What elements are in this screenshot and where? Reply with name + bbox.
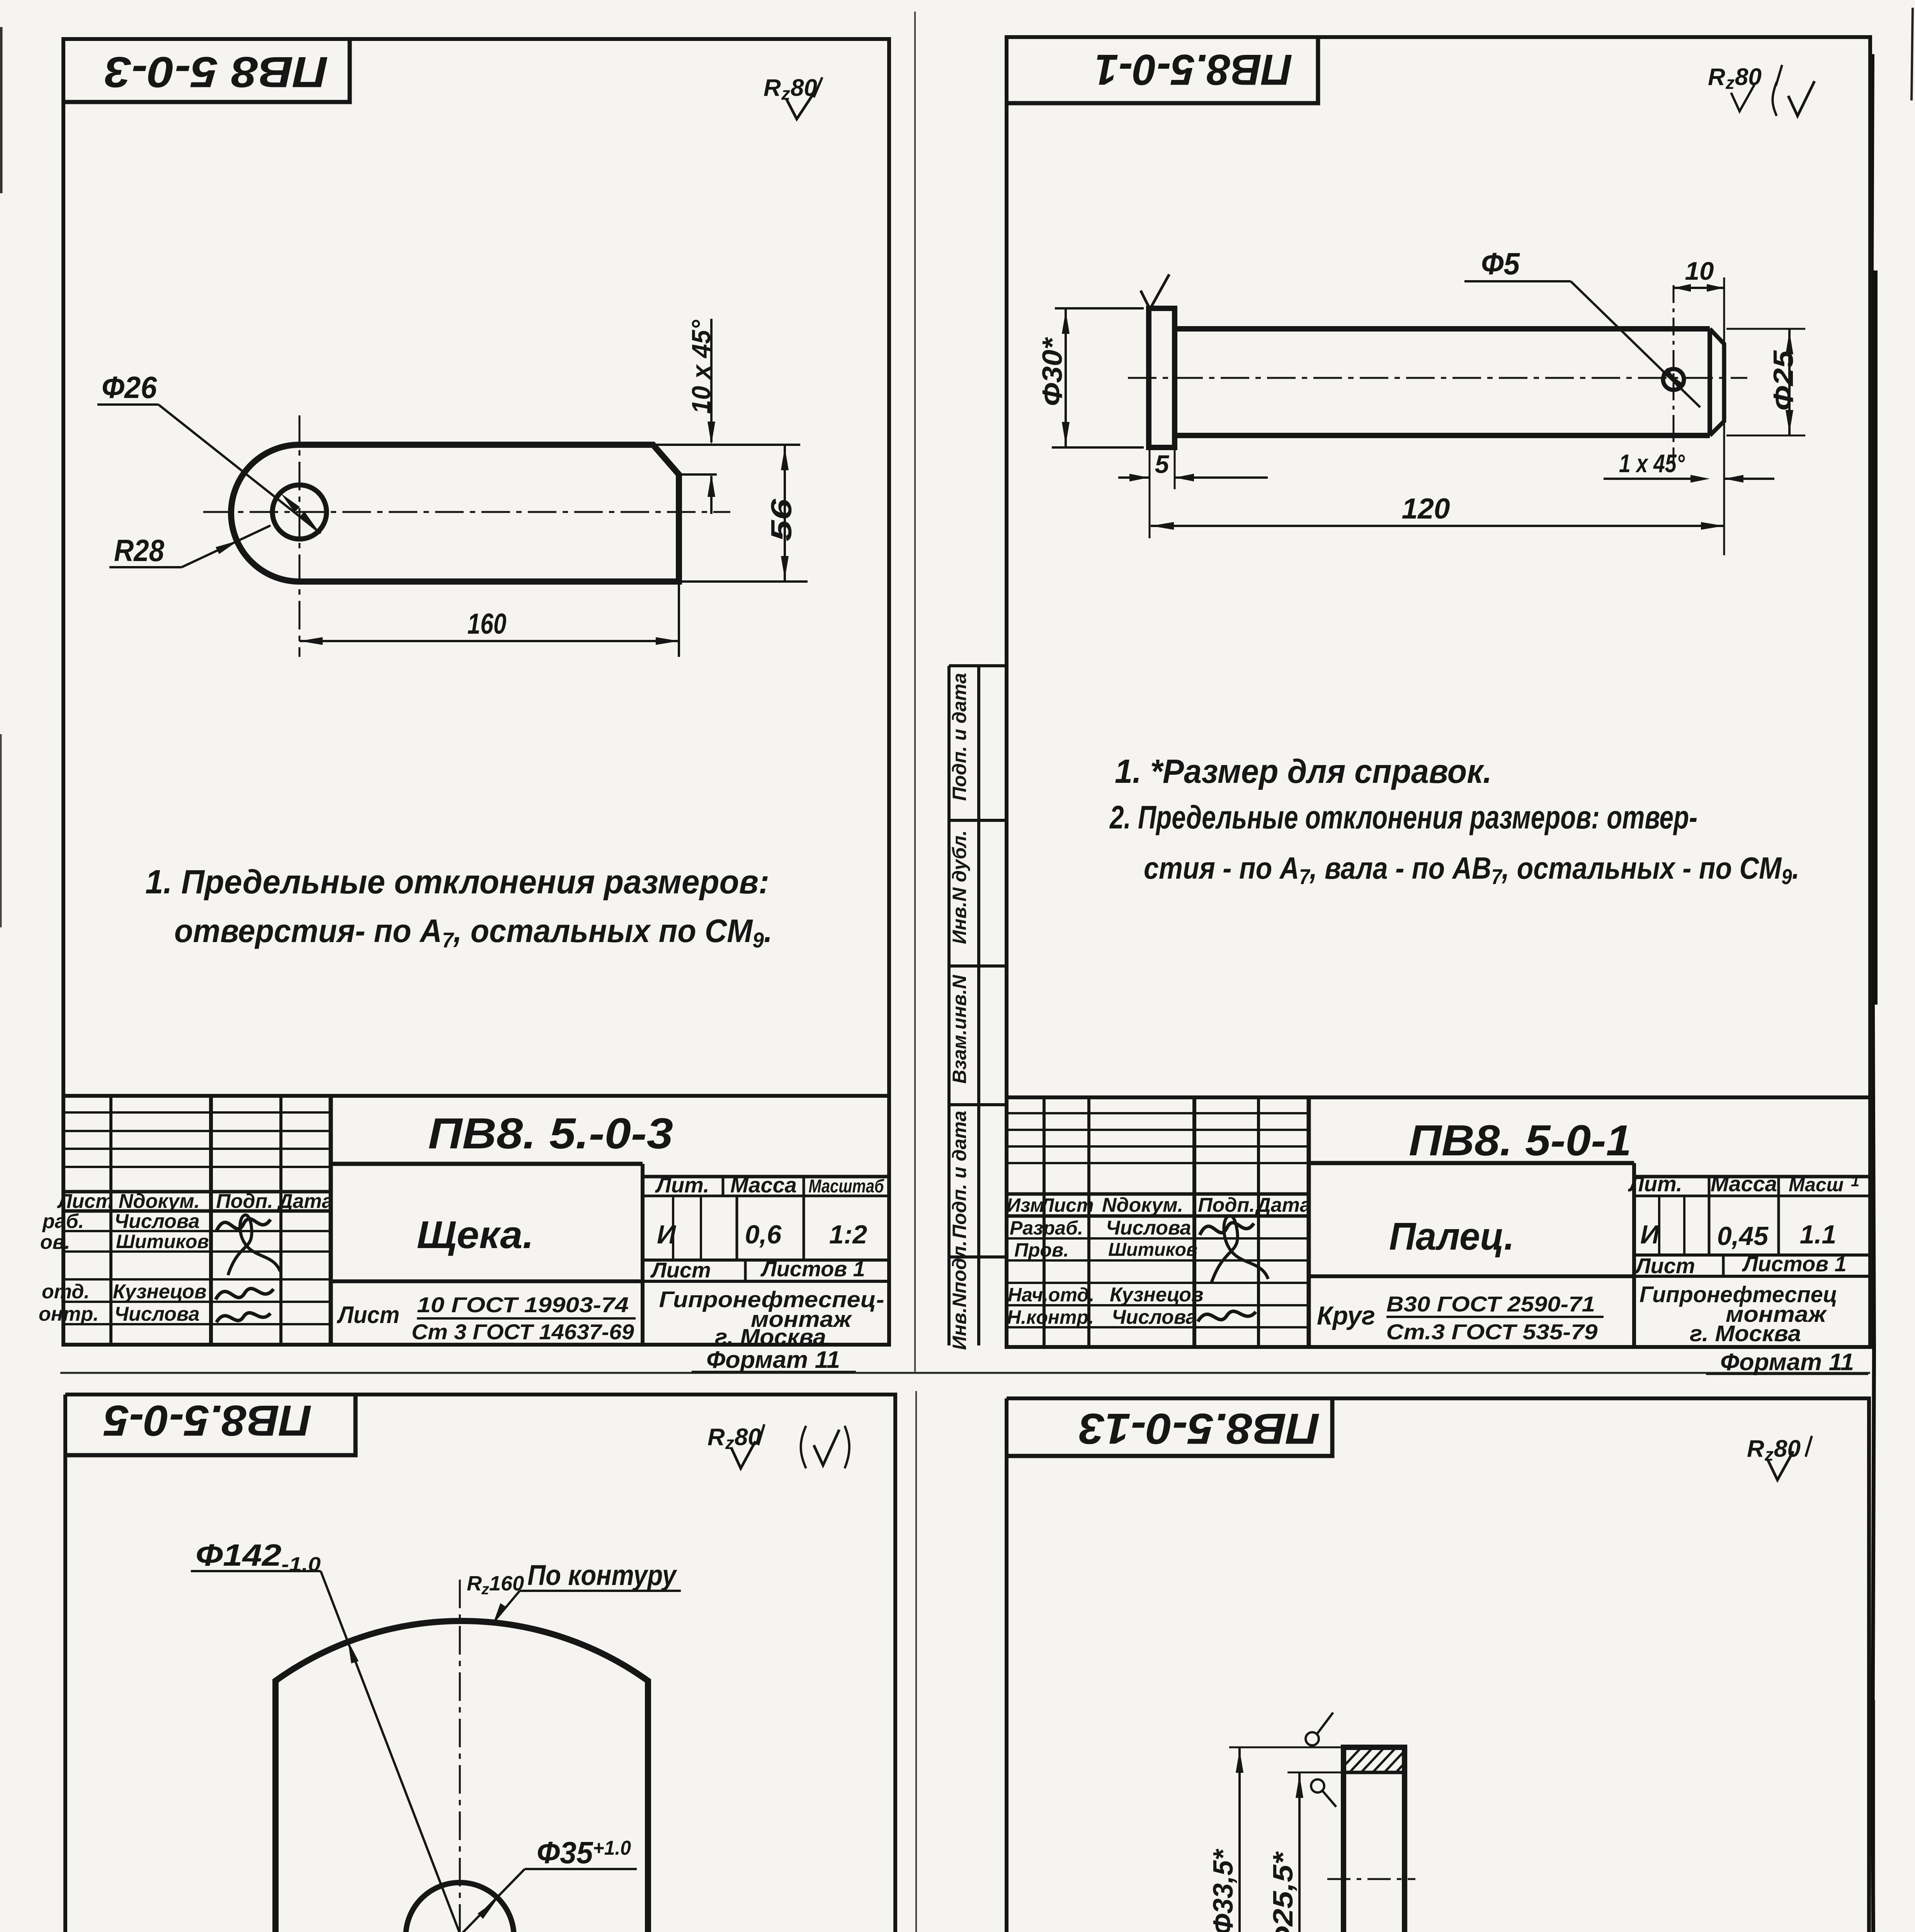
svg-text:Кузнецов: Кузнецов: [1110, 1284, 1203, 1306]
svg-text:10: 10: [1685, 257, 1714, 285]
svg-text:1:2: 1:2: [829, 1220, 867, 1249]
svg-text:Формат 11: Формат 11: [706, 1347, 840, 1373]
svg-text:отд.: отд.: [42, 1281, 90, 1303]
svg-text:г. Москва: г. Москва: [1690, 1321, 1801, 1346]
svg-text:R: R: [467, 1572, 482, 1595]
svg-text:56: 56: [765, 498, 798, 541]
svg-text:Взам.инв.N: Взам.инв.N: [949, 975, 970, 1083]
svg-text:Числова: Числова: [114, 1303, 200, 1325]
svg-text:Лист: Лист: [650, 1258, 711, 1282]
svg-text:И: И: [1640, 1220, 1660, 1249]
svg-text:0,6: 0,6: [745, 1220, 782, 1249]
svg-text:80: 80: [735, 1424, 761, 1451]
svg-text:160: 160: [468, 607, 507, 640]
svg-text:R: R: [1708, 64, 1725, 90]
svg-text:Листов 1: Листов 1: [1742, 1252, 1847, 1276]
svg-text:Палец.: Палец.: [1389, 1215, 1514, 1258]
svg-text:Лист: Лист: [1039, 1194, 1094, 1216]
svg-text:1 x 45°: 1 x 45°: [1619, 449, 1685, 478]
svg-text:ПВ8. 5.-0-3: ПВ8. 5.-0-3: [428, 1109, 673, 1158]
svg-text:Дата: Дата: [1255, 1194, 1311, 1216]
svg-text:ПВ8.5-0-1: ПВ8.5-0-1: [1095, 46, 1293, 94]
svg-text:Масса: Масса: [730, 1173, 797, 1197]
svg-text:Подп. и дата: Подп. и дата: [949, 673, 970, 801]
svg-text:Формат 11: Формат 11: [1720, 1349, 1854, 1376]
svg-text:Лист: Лист: [337, 1302, 400, 1328]
svg-text:Nдокум.: Nдокум.: [1102, 1194, 1183, 1216]
svg-text:Пров.: Пров.: [1014, 1239, 1069, 1261]
svg-text:В30 ГОСТ 2590-71: В30 ГОСТ 2590-71: [1386, 1292, 1595, 1316]
svg-text:раб.: раб.: [42, 1210, 84, 1233]
svg-text:стия - по А7, вала - по АВ7, о: стия - по А7, вала - по АВ7, остальных -…: [1144, 851, 1799, 889]
svg-text:Лист: Лист: [1634, 1253, 1695, 1278]
svg-text:ПВ8 5-0-3: ПВ8 5-0-3: [105, 48, 328, 96]
svg-text:Ф30*: Ф30*: [1037, 337, 1068, 406]
svg-text:1. *Размер для справок.: 1. *Размер для справок.: [1115, 753, 1492, 790]
svg-text:Числова: Числова: [1106, 1217, 1191, 1239]
svg-text:5: 5: [1155, 450, 1170, 478]
svg-text:2. Предельные отклонения разме: 2. Предельные отклонения размеров: отвер…: [1109, 799, 1697, 835]
svg-text:Нач.отд.: Нач.отд.: [1008, 1284, 1094, 1306]
svg-text:Ст 3 ГОСТ 14637-69: Ст 3 ГОСТ 14637-69: [412, 1320, 634, 1344]
svg-text:Масштаб: Масштаб: [809, 1176, 884, 1197]
svg-text:г. Москва: г. Москва: [715, 1325, 826, 1350]
svg-text:R: R: [1747, 1435, 1764, 1462]
svg-text:Подп.: Подп.: [216, 1190, 273, 1213]
svg-text:Листов 1: Листов 1: [760, 1257, 865, 1281]
svg-text:Лит.: Лит.: [655, 1173, 709, 1197]
svg-text:По контуру: По контуру: [527, 1559, 677, 1591]
svg-text:Масш: Масш: [1789, 1174, 1844, 1196]
svg-text:R: R: [707, 1424, 725, 1451]
svg-text:Ст.3 ГОСТ 535-79: Ст.3 ГОСТ 535-79: [1386, 1320, 1598, 1344]
svg-text:1. Предельные отклонения раз: 1. Предельные отклонения размеров:: [145, 863, 769, 901]
svg-text:Числова: Числова: [114, 1210, 200, 1233]
svg-text:10 ГОСТ 19903-74: 10 ГОСТ 19903-74: [417, 1293, 629, 1317]
svg-text:Ф5: Ф5: [1481, 247, 1520, 281]
svg-text:120: 120: [1402, 492, 1450, 525]
svg-text:Изм: Изм: [1007, 1194, 1044, 1216]
svg-text:Щека.: Щека.: [417, 1213, 534, 1257]
svg-text:z: z: [1725, 73, 1735, 93]
svg-text:Инв.N дубл.: Инв.N дубл.: [949, 830, 970, 944]
svg-text:Инв.Nподл.: Инв.Nподл.: [949, 1240, 970, 1350]
svg-text:Кузнецов: Кузнецов: [113, 1281, 206, 1303]
svg-text:Ф25: Ф25: [1768, 350, 1799, 411]
svg-text:80: 80: [1774, 1435, 1801, 1462]
svg-text:Ф33,5*: Ф33,5*: [1208, 1849, 1239, 1932]
svg-text:z: z: [481, 1581, 489, 1598]
svg-text:Числова: Числова: [1112, 1306, 1197, 1328]
svg-text:80: 80: [791, 75, 817, 101]
svg-text:И: И: [657, 1220, 677, 1249]
svg-text:Разраб.: Разраб.: [1010, 1217, 1083, 1239]
svg-text:Н.контр.: Н.контр.: [1007, 1306, 1094, 1328]
svg-text:ов.: ов.: [40, 1231, 70, 1253]
svg-text:Ф25,5*: Ф25,5*: [1268, 1851, 1299, 1932]
svg-text:Подп. и дата: Подп. и дата: [949, 1111, 970, 1238]
svg-text:Nдокум.: Nдокум.: [119, 1190, 200, 1213]
svg-text:ПВ8. 5-0-1: ПВ8. 5-0-1: [1409, 1116, 1631, 1165]
svg-text:Шитиков: Шитиков: [1108, 1240, 1197, 1260]
svg-text:онтр.: онтр.: [39, 1303, 99, 1325]
svg-text:Подп.: Подп.: [1198, 1194, 1255, 1216]
svg-text:ПВ8.5-0-13: ПВ8.5-0-13: [1079, 1405, 1320, 1453]
svg-text:1.1: 1.1: [1800, 1220, 1837, 1249]
svg-text:R: R: [764, 75, 781, 101]
svg-text:Круг: Круг: [1317, 1301, 1375, 1330]
svg-text:80: 80: [1735, 64, 1762, 90]
svg-text:Масса: Масса: [1711, 1172, 1777, 1196]
svg-text:Лист: Лист: [57, 1190, 114, 1213]
svg-text:Дата: Дата: [277, 1190, 333, 1213]
svg-text:Шитиков: Шитиков: [116, 1231, 209, 1252]
svg-text:1: 1: [1851, 1173, 1859, 1190]
svg-text:z: z: [781, 83, 790, 104]
svg-text:0,45: 0,45: [1717, 1221, 1769, 1251]
svg-text:Ф26: Ф26: [102, 370, 157, 405]
svg-text:R28: R28: [114, 533, 164, 568]
svg-text:Лит.: Лит.: [1628, 1172, 1682, 1196]
svg-text:отверстия- по А7, остальных по: отверстия- по А7, остальных по СМ9.: [174, 913, 772, 952]
svg-text:ПВ8.5-0-5: ПВ8.5-0-5: [103, 1396, 312, 1445]
